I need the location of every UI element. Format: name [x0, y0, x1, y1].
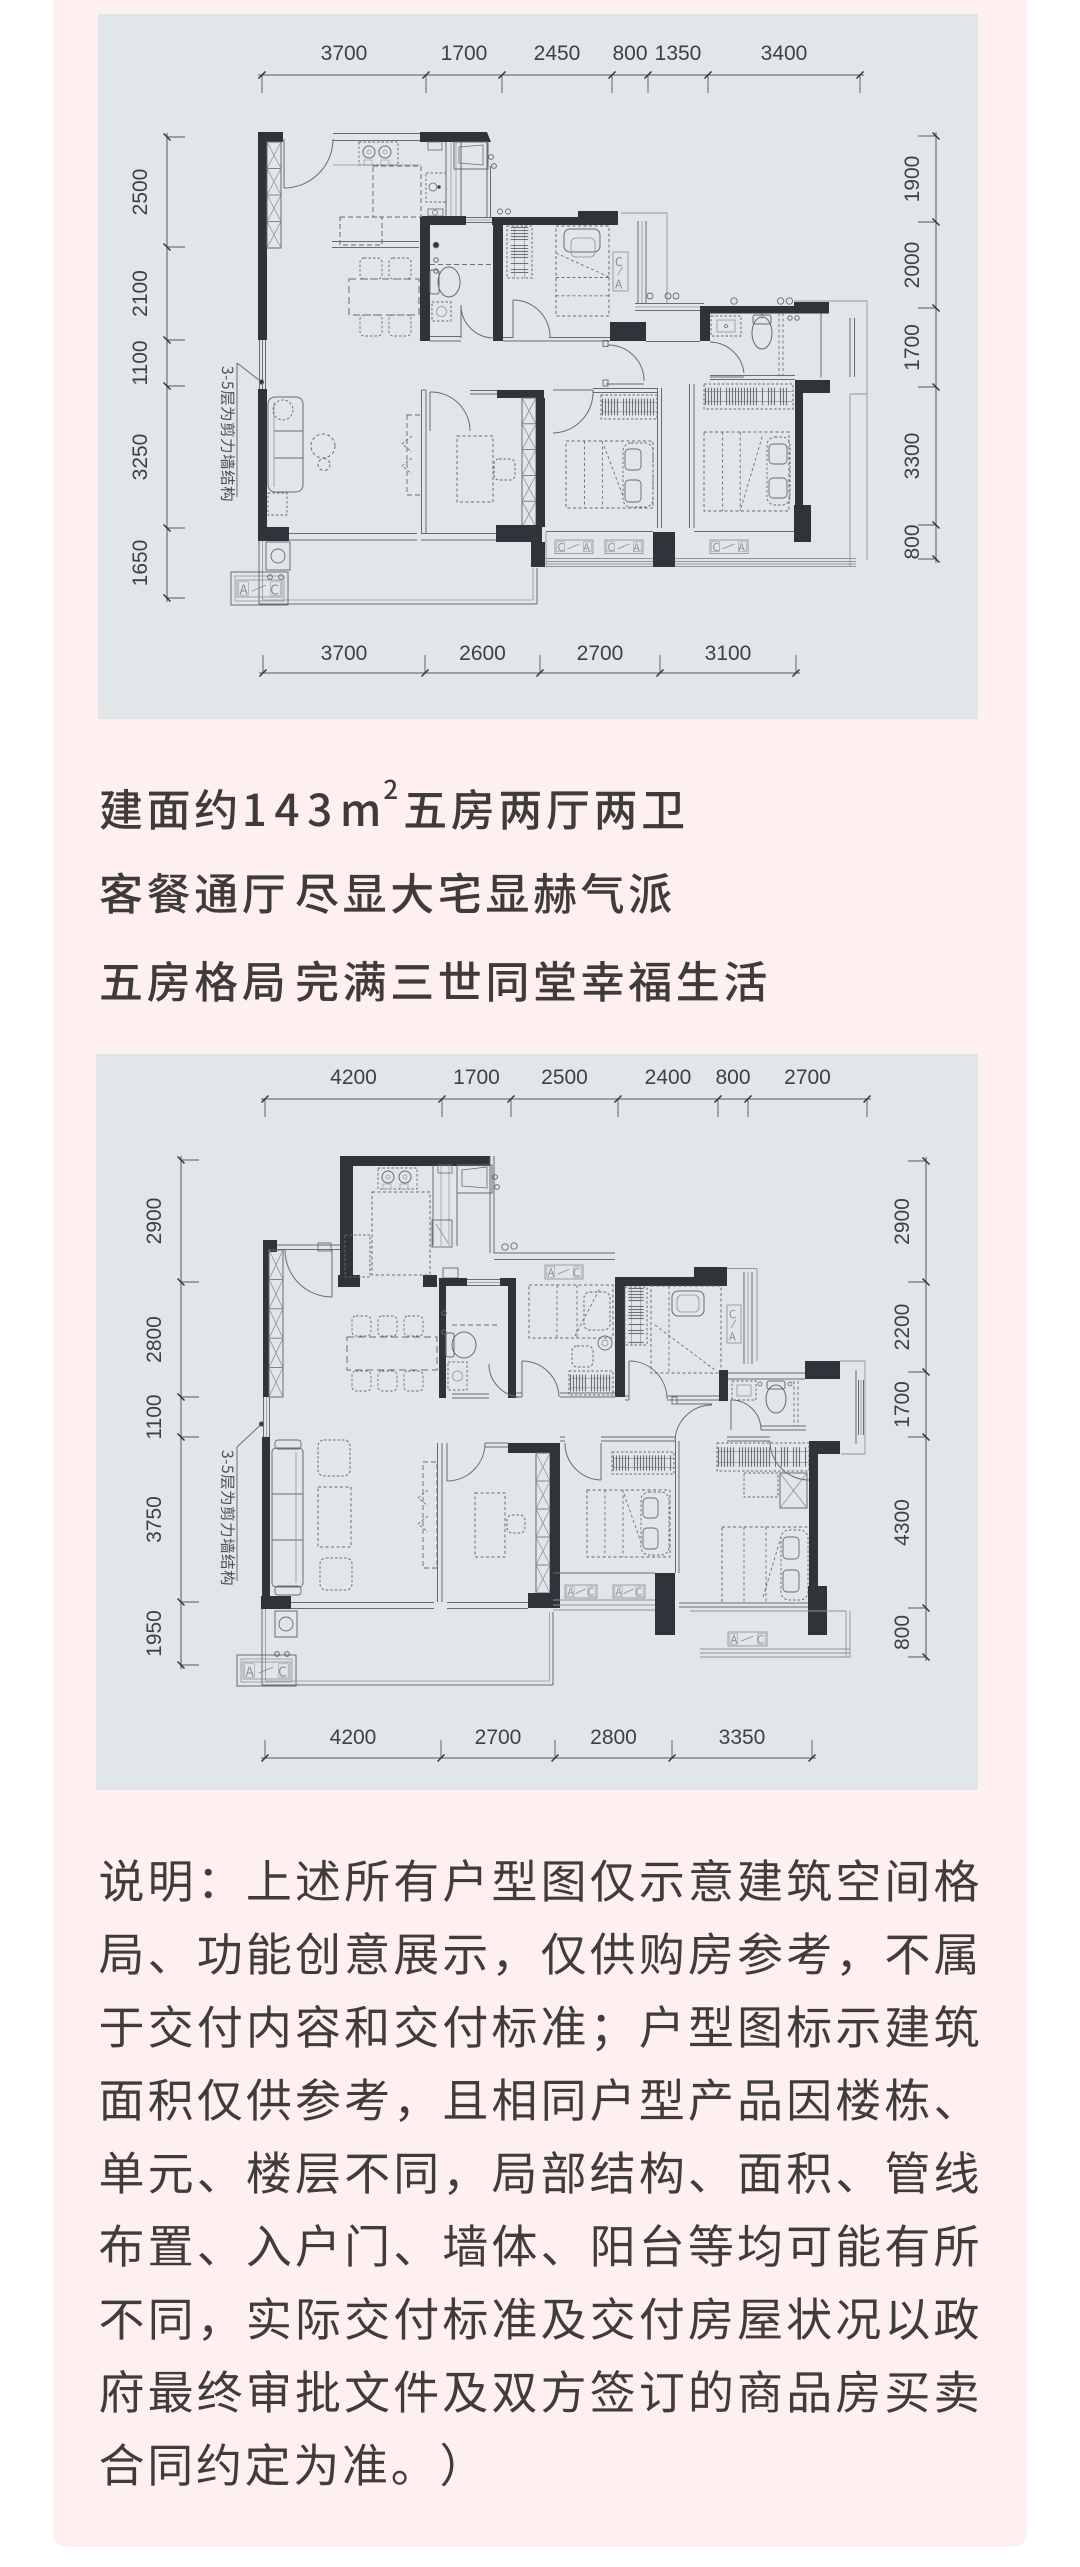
svg-text:3300: 3300: [901, 433, 924, 480]
svg-text:1650: 1650: [129, 540, 152, 587]
svg-text:2800: 2800: [143, 1316, 166, 1363]
svg-text:3700: 3700: [321, 642, 368, 665]
svg-text:3750: 3750: [143, 1496, 166, 1543]
svg-text:4200: 4200: [330, 1066, 377, 1089]
svg-text:1700: 1700: [901, 324, 924, 371]
svg-text:3700: 3700: [321, 42, 368, 65]
svg-text:800: 800: [715, 1066, 750, 1089]
svg-text:2450: 2450: [534, 42, 581, 65]
svg-text:2900: 2900: [143, 1198, 166, 1245]
svg-text:4300: 4300: [891, 1499, 914, 1546]
svg-text:2800: 2800: [590, 1726, 637, 1749]
svg-text:3100: 3100: [705, 642, 752, 665]
svg-text:1700: 1700: [441, 42, 488, 65]
svg-text:1950: 1950: [143, 1610, 166, 1657]
svg-text:3350: 3350: [719, 1726, 766, 1749]
svg-text:2900: 2900: [891, 1198, 914, 1245]
svg-text:1900: 1900: [901, 156, 924, 203]
svg-text:2600: 2600: [459, 642, 506, 665]
svg-text:2500: 2500: [541, 1066, 588, 1089]
svg-text:2700: 2700: [475, 1726, 522, 1749]
svg-text:1700: 1700: [891, 1381, 914, 1428]
svg-text:2200: 2200: [891, 1304, 914, 1351]
svg-text:2700: 2700: [784, 1066, 831, 1089]
svg-text:2700: 2700: [577, 642, 624, 665]
svg-text:1700: 1700: [453, 1066, 500, 1089]
svg-text:1350: 1350: [655, 42, 702, 65]
svg-text:800: 800: [612, 42, 647, 65]
svg-text:2400: 2400: [645, 1066, 692, 1089]
svg-text:800: 800: [891, 1615, 914, 1650]
svg-text:800: 800: [901, 524, 924, 559]
svg-text:2000: 2000: [901, 242, 924, 289]
svg-text:3400: 3400: [761, 42, 808, 65]
svg-text:2500: 2500: [129, 169, 152, 216]
svg-text:1100: 1100: [129, 340, 152, 385]
svg-text:1100: 1100: [143, 1394, 166, 1439]
svg-text:4200: 4200: [330, 1726, 377, 1749]
svg-text:3250: 3250: [129, 434, 152, 481]
svg-text:2100: 2100: [129, 270, 152, 317]
